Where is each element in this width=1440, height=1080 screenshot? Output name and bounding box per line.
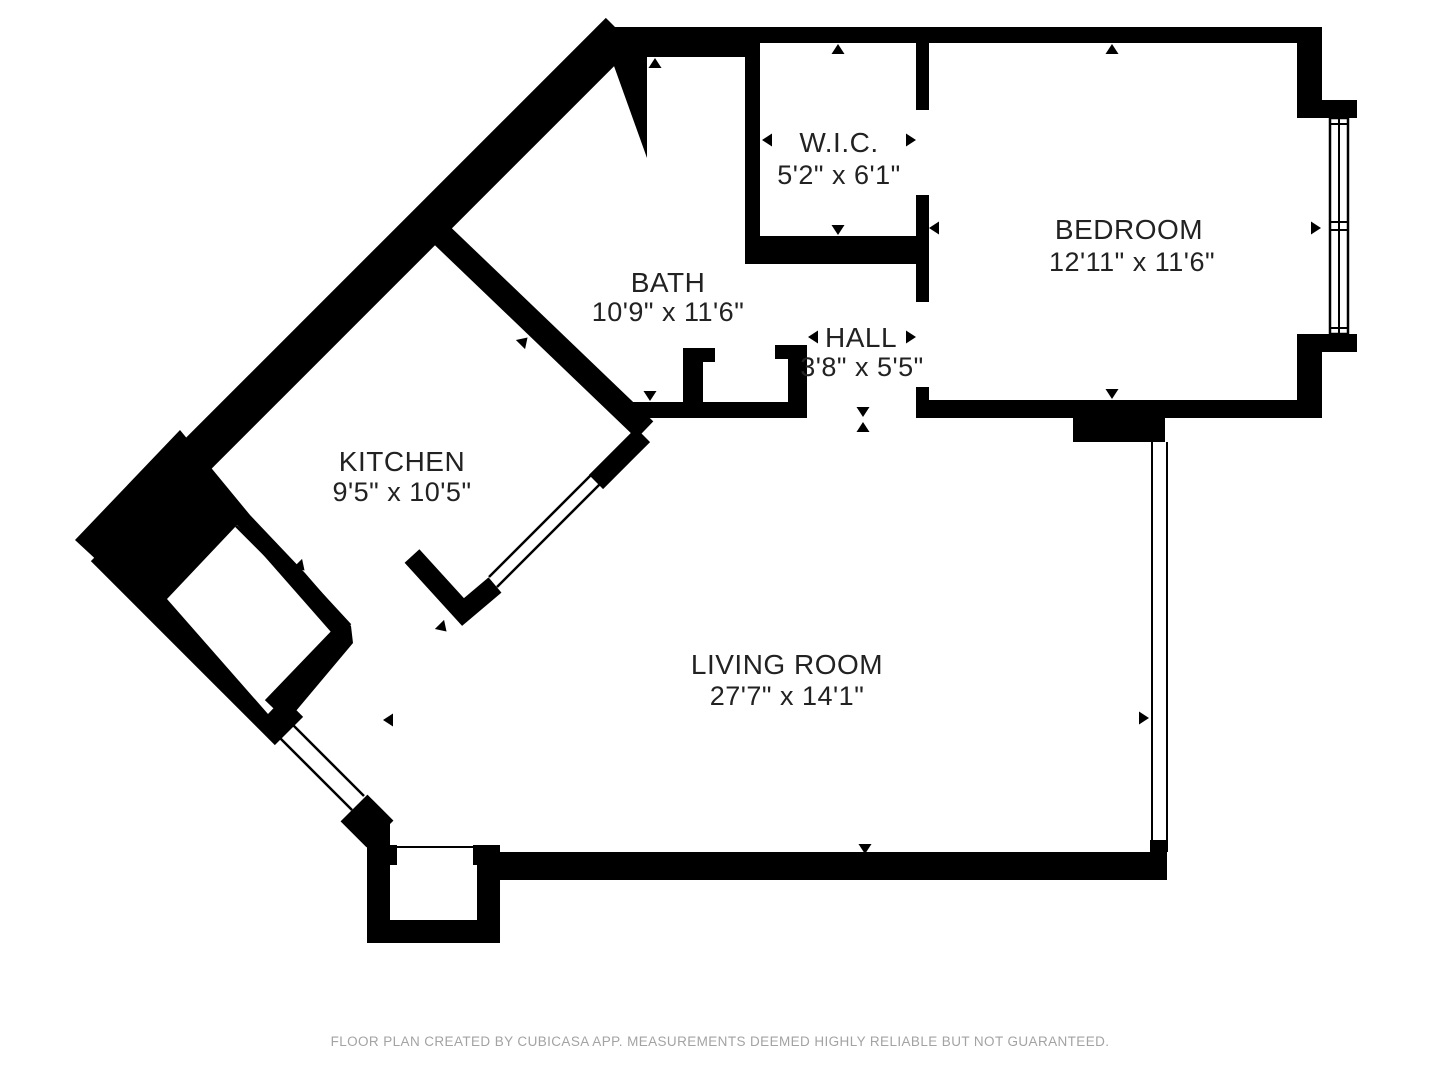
wall-wic-right-lower: [916, 195, 929, 236]
dimension-arrow-bath-up: [649, 58, 662, 68]
dimension-arrow-living-left: [383, 714, 393, 727]
room-label-bath: BATH: [631, 267, 706, 298]
dimension-arrow-wic-down: [832, 225, 845, 235]
room-dims-living-room: 27'7" x 14'1": [710, 681, 865, 711]
room-dims-bath: 10'9" x 11'6": [592, 297, 745, 327]
wall-hall-right-upper: [916, 264, 929, 302]
wall-bedroom-bottom-bump: [1073, 418, 1165, 442]
dimension-arrow-bedroom-up: [1106, 44, 1119, 54]
dimension-arrow-living-up: [857, 422, 870, 432]
kitchen-passthrough-window: [489, 474, 600, 587]
floor-plan-drawing: W.I.C. 5'2" x 6'1" BATH 10'9" x 11'6" HA…: [0, 0, 1440, 1080]
room-dims-kitchen: 9'5" x 10'5": [332, 477, 471, 507]
wall-passthrough-upper: [596, 435, 643, 482]
wall-hall-right-lower: [916, 387, 929, 400]
wall-right-step-top: [1297, 100, 1357, 118]
dimension-arrow-wic-right: [906, 134, 916, 147]
wall-kitchen-south-v: [412, 556, 495, 612]
footer-disclaimer: FLOOR PLAN CREATED BY CUBICASA APP. MEAS…: [331, 1034, 1110, 1049]
wall-bath-stub-left: [683, 348, 703, 402]
room-label-living-room: LIVING ROOM: [691, 649, 883, 680]
jamb-bath-left-notch: [703, 348, 715, 362]
room-label-hall: HALL: [825, 322, 897, 353]
wall-bedroom-bottom: [916, 400, 1322, 418]
wall-bath-bottom: [630, 402, 807, 418]
wall-living-bottom: [477, 852, 1167, 880]
dimension-arrow-wic-left: [762, 134, 772, 147]
wall-wic-bottom: [745, 236, 929, 264]
dimension-arrow-wic-up: [832, 44, 845, 54]
room-label-wic: W.I.C.: [799, 127, 878, 158]
room-label-kitchen: KITCHEN: [339, 446, 465, 477]
dimension-arrow-hall-left: [808, 331, 818, 344]
room-label-bedroom: BEDROOM: [1055, 214, 1203, 245]
wall-wic-left: [745, 43, 760, 236]
dimension-arrow-hall-right: [906, 331, 916, 344]
passthrough-window-line-2: [497, 484, 600, 587]
room-dims-hall: 3'8" x 5'5": [800, 352, 924, 382]
bedroom-window: [1330, 118, 1348, 334]
jamb-bath-right-notch: [775, 345, 788, 359]
dimension-arrow-bedroom-left: [929, 222, 939, 235]
wall-right-upper: [1297, 27, 1322, 100]
dimension-arrow-bedroom-down: [1106, 389, 1119, 399]
dimension-arrow-hall-down: [857, 407, 870, 417]
floor-plan-page: W.I.C. 5'2" x 6'1" BATH 10'9" x 11'6" HA…: [0, 0, 1440, 1080]
passthrough-window-line-1: [489, 474, 592, 577]
entry-area: [276, 722, 500, 943]
wall-wic-right-upper: [916, 43, 929, 110]
wall-right-step-bottom: [1297, 334, 1357, 352]
room-dims-bedroom: 12'11" x 11'6": [1049, 247, 1215, 277]
dimension-arrow-living-right: [1139, 712, 1149, 725]
dimension-arrow-bedroom-right: [1311, 222, 1321, 235]
dimension-arrow-kitchen-se: [435, 620, 451, 636]
dimension-arrow-bath-down: [644, 391, 657, 401]
room-dims-wic: 5'2" x 6'1": [777, 160, 901, 190]
